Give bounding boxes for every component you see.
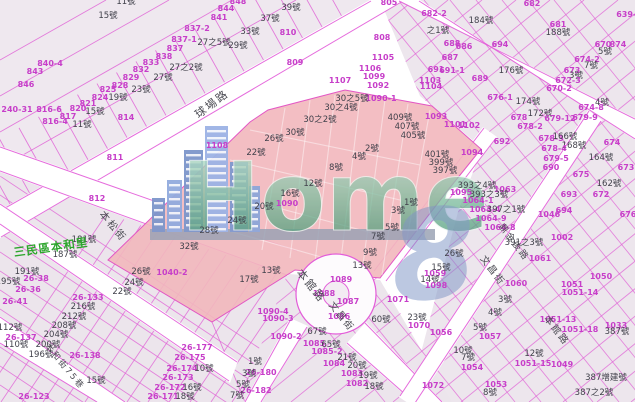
parcel-number-label: 874: [610, 41, 627, 49]
house-number-label: 387增建號: [585, 374, 627, 383]
house-number-label: 3號: [391, 207, 405, 216]
parcel-number-label: 1090-3: [262, 315, 293, 323]
parcel-number-label: 1092: [367, 82, 389, 90]
parcel-number-label: 1072: [422, 382, 444, 390]
house-number-label: 184號: [469, 17, 494, 26]
house-number-label: 3號: [498, 296, 512, 305]
parcel-number-label: 1046: [538, 211, 560, 219]
house-number-label: 13號: [261, 267, 280, 276]
house-number-label: 216號: [71, 303, 96, 312]
house-number-label: 27之5號: [197, 39, 230, 48]
house-number-label: 26號: [264, 135, 283, 144]
house-number-label: 18號: [175, 393, 194, 402]
parcel-number-label: 26-174: [166, 365, 197, 373]
parcel-number-label: 687: [442, 54, 459, 62]
parcel-number-label: 26-173: [162, 374, 193, 382]
house-number-label: 3號: [242, 370, 256, 379]
parcel-number-label: 674: [604, 139, 621, 147]
house-number-label: 之1號: [427, 27, 449, 36]
parcel-number-label: 1061: [529, 255, 551, 263]
house-number-label: 1號: [404, 199, 418, 208]
parcel-number-label: 689: [472, 75, 489, 83]
house-number-label: 18號: [364, 383, 383, 392]
house-number-label: 27之2號: [169, 64, 202, 73]
parcel-number-label: 816-4: [42, 118, 68, 126]
parcel-number-label: 1051-14: [562, 289, 599, 297]
parcel-number-label: 26-36: [15, 286, 41, 294]
house-number-label: 12號: [303, 180, 322, 189]
house-number-label: 27號: [153, 74, 172, 83]
parcel-number-label: 1057: [479, 333, 501, 341]
parcel-number-label: 1108: [206, 142, 228, 150]
house-number-label: 5號: [385, 224, 399, 233]
parcel-number-label: 837-1: [171, 36, 197, 44]
parcel-number-label: 843: [27, 68, 44, 76]
parcel-number-label: 812: [89, 195, 106, 203]
parcel-number-label: 639-1: [616, 11, 635, 19]
house-number-label: 32號: [179, 243, 198, 252]
house-number-label: 26號: [131, 268, 150, 277]
parcel-number-label: 678: [511, 114, 528, 122]
parcel-number-label: 1098: [425, 282, 447, 290]
parcel-number-label: 1094: [461, 149, 483, 157]
house-number-label: 5號: [236, 381, 250, 390]
house-number-label: 164號: [589, 154, 614, 163]
house-number-label: 17號: [239, 276, 258, 285]
street-name-label: 文昌街: [478, 254, 506, 287]
house-number-label: 39號: [281, 4, 300, 13]
parcel-number-label: 846: [18, 81, 35, 89]
house-number-label: 11號: [72, 121, 91, 130]
house-number-label: 20號: [254, 203, 273, 212]
parcel-number-label: 1071: [387, 296, 409, 304]
parcel-number-label: 1104: [420, 83, 442, 91]
house-number-label: 2號: [365, 145, 379, 154]
parcel-number-label: 1049: [551, 361, 573, 369]
house-number-label: 15號: [86, 377, 105, 386]
cadastral-map[interactable]: Home 8 837-2837-183783883383282982882582…: [0, 0, 635, 402]
parcel-number-label: 1060: [505, 280, 527, 288]
parcel-number-label: 1102: [458, 122, 480, 130]
house-number-label: 162號: [597, 180, 622, 189]
parcel-number-label: 837-2: [184, 25, 210, 33]
parcel-number-label: 1002: [551, 234, 573, 242]
parcel-number-label: 676: [620, 211, 635, 219]
parcel-number-label: 841: [211, 14, 228, 22]
house-number-label: 405號: [401, 132, 426, 141]
parcel-number-label: 1051-18: [562, 326, 599, 334]
house-number-label: 33號: [240, 28, 259, 37]
parcel-number-label: 690: [543, 164, 560, 172]
street-name-label: 本館路: [294, 267, 327, 304]
parcel-number-label: 679-9: [572, 114, 598, 122]
parcel-number-label: 1090: [276, 200, 298, 208]
parcel-number-label: 676-1: [487, 94, 513, 102]
house-number-label: 110號: [4, 341, 29, 350]
house-number-label: 9號: [363, 249, 377, 258]
house-number-label: 24號: [227, 217, 246, 226]
parcel-number-label: 686: [456, 43, 473, 51]
parcel-number-label: 691-1: [439, 67, 465, 75]
house-number-label: 22號: [246, 149, 265, 158]
parcel-number-label: 679-12: [544, 115, 575, 123]
parcel-number-label: 811: [107, 154, 124, 162]
house-number-label: 16號: [280, 190, 299, 199]
parcel-number-label: 805: [381, 0, 398, 7]
house-number-label: 5號: [473, 324, 487, 333]
parcel-number-label: 26-41: [2, 298, 28, 306]
parcel-number-label: 808: [374, 34, 391, 42]
parcel-number-label: 810: [280, 29, 297, 37]
house-number-label: 387號: [605, 328, 630, 337]
parcel-number-label: 674-8: [578, 104, 604, 112]
house-number-label: 10號: [194, 365, 213, 374]
house-number-label: 7號: [371, 233, 385, 242]
parcel-number-label: 1090-2: [270, 333, 301, 341]
parcel-number-label: 26-137: [5, 334, 36, 342]
house-number-label: 30之2號: [303, 116, 336, 125]
parcel-number-label: 682: [524, 0, 541, 8]
street-name-label: 本和街75巷: [42, 343, 85, 392]
house-number-label: 112號: [0, 324, 22, 333]
parcel-number-label: 1089: [330, 276, 352, 284]
parcel-number-label: 679-5: [543, 155, 569, 163]
street-name-label: 本松街: [97, 210, 128, 244]
house-number-label: 30號: [285, 129, 304, 138]
parcel-number-label: 1051-15: [515, 360, 552, 368]
parcel-number-label: 848: [230, 0, 247, 6]
parcel-number-label: 693: [561, 191, 578, 199]
parcel-number-label: 1087: [337, 298, 359, 306]
house-number-label: 26號: [444, 250, 463, 259]
house-number-label: 7號: [461, 354, 475, 363]
parcel-number-label: 240-31: [1, 106, 32, 114]
map-labels: 837-2837-1837838833832829828825824821820…: [0, 0, 635, 402]
parcel-number-label: 1084: [323, 360, 345, 368]
house-number-label: 60號: [371, 316, 390, 325]
parcel-number-label: 1105: [372, 54, 394, 62]
house-number-label: 67號: [307, 328, 326, 337]
house-number-label: 176號: [499, 67, 524, 76]
parcel-number-label: 840-4: [37, 60, 63, 68]
house-number-label: 8號: [329, 164, 343, 173]
parcel-number-label: 26-175: [174, 354, 205, 362]
parcel-number-label: 844: [218, 5, 235, 13]
parcel-number-label: 678-2: [517, 123, 543, 131]
parcel-number-label: 1099: [363, 73, 385, 81]
house-number-label: 23號: [131, 86, 150, 95]
parcel-number-label: 692: [494, 138, 511, 146]
parcel-number-label: 809: [287, 59, 304, 67]
house-number-label: 5號: [598, 48, 612, 57]
parcel-number-label: 1107: [329, 77, 351, 85]
house-number-label: 15號: [85, 108, 104, 117]
house-number-label: 188號: [546, 29, 571, 38]
house-number-label: 174號: [516, 98, 541, 107]
parcel-number-label: 670-2: [546, 85, 572, 93]
house-number-label: 22號: [112, 288, 131, 297]
parcel-number-label: 816-6: [36, 106, 62, 114]
house-number-label: 1號: [248, 358, 262, 367]
parcel-number-label: 675: [573, 171, 590, 179]
parcel-number-label: 1090-1: [365, 95, 396, 103]
house-number-label: 4號: [352, 153, 366, 162]
parcel-number-label: 678-4: [541, 145, 567, 153]
house-number-label: 7號: [230, 392, 244, 401]
parcel-number-label: 1070: [408, 322, 430, 330]
parcel-number-label: 694: [492, 41, 509, 49]
parcel-number-label: 682-2: [421, 10, 447, 18]
parcel-number-label: 26-38: [23, 275, 49, 283]
parcel-number-label: 672: [593, 191, 610, 199]
house-number-label: 13號: [352, 262, 371, 271]
parcel-number-label: 1050: [590, 273, 612, 281]
parcel-number-label: 26-171: [147, 393, 178, 401]
parcel-number-label: 1064-9: [475, 215, 506, 223]
house-number-label: 11號: [116, 0, 135, 6]
parcel-number-label: 1054: [461, 364, 483, 372]
house-number-label: 29號: [228, 42, 247, 51]
house-number-label: 4號: [488, 309, 502, 318]
street-name-label: 球場路: [193, 88, 231, 120]
house-number-label: 397之1號: [487, 206, 526, 215]
house-number-label: 19號: [108, 94, 127, 103]
house-number-label: 37號: [260, 15, 279, 24]
parcel-number-label: 1040-2: [156, 269, 187, 277]
parcel-number-label: 673: [618, 164, 635, 172]
parcel-number-label: 814: [118, 114, 135, 122]
parcel-number-label: 26-123: [18, 393, 49, 401]
house-number-label: 15號: [431, 264, 450, 273]
house-number-label: 387之2號: [575, 389, 614, 398]
house-number-label: 12號: [524, 350, 543, 359]
house-number-label: 15號: [98, 12, 117, 21]
house-number-label: 8號: [483, 389, 497, 398]
house-number-label: 7號: [584, 62, 598, 71]
parcel-number-label: 1056: [430, 329, 452, 337]
parcel-number-label: 26-138: [69, 352, 100, 360]
house-number-label: 28號: [199, 227, 218, 236]
parcel-number-label: 26-177: [181, 344, 212, 352]
house-number-label: 397號: [433, 167, 458, 176]
house-number-label: 204號: [44, 331, 69, 340]
house-number-label: 30之4號: [324, 104, 357, 113]
